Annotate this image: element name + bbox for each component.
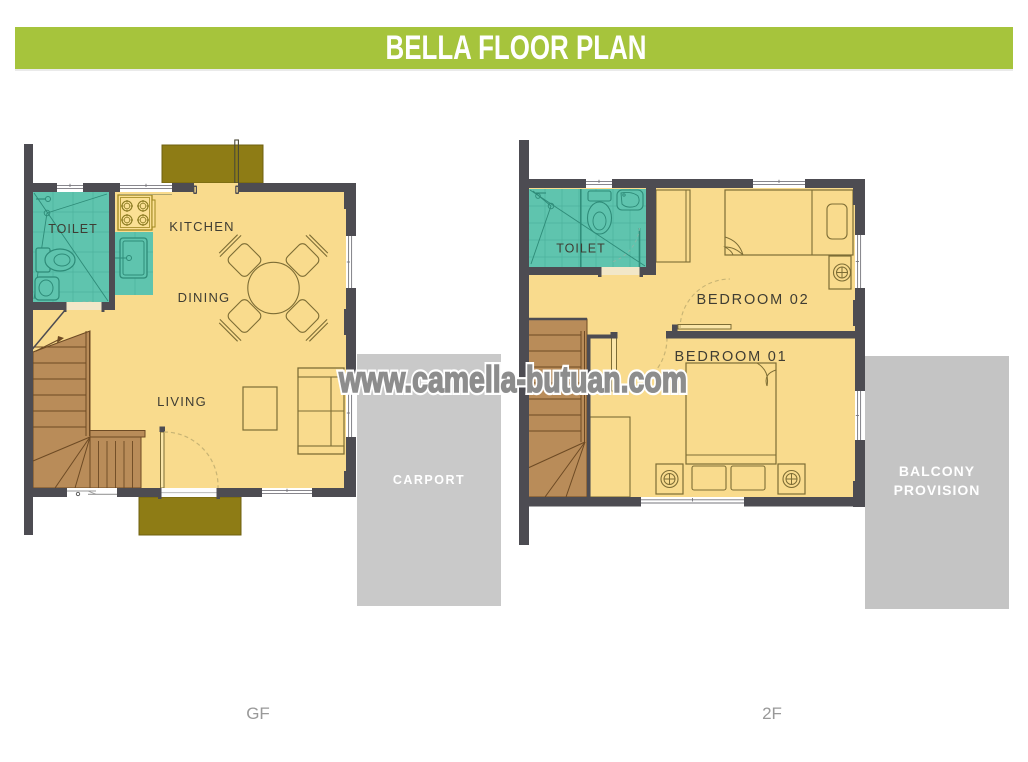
- svg-text:www.camella-butuan.com: www.camella-butuan.com: [338, 359, 687, 400]
- svg-text:BALCONY: BALCONY: [899, 463, 975, 479]
- svg-text:GF: GF: [246, 704, 270, 723]
- svg-text:BELLA FLOOR PLAN: BELLA FLOOR PLAN: [386, 29, 647, 67]
- svg-text:CARPORT: CARPORT: [393, 473, 465, 487]
- svg-text:LIVING: LIVING: [157, 394, 207, 409]
- svg-text:PROVISION: PROVISION: [894, 482, 981, 498]
- svg-text:TOILET: TOILET: [556, 242, 606, 256]
- svg-text:DINING: DINING: [178, 290, 231, 305]
- svg-text:KITCHEN: KITCHEN: [169, 219, 234, 234]
- svg-text:BEDROOM 02: BEDROOM 02: [696, 292, 809, 308]
- svg-text:TOILET: TOILET: [48, 222, 98, 236]
- svg-text:2F: 2F: [762, 704, 782, 723]
